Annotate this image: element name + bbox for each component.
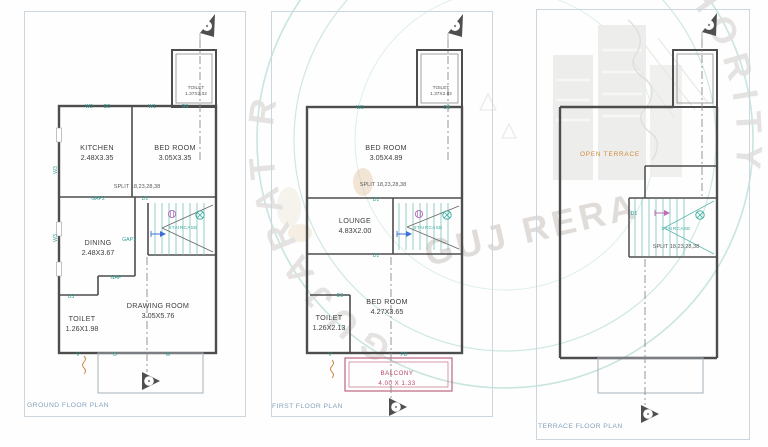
opening-d1: D1 bbox=[631, 211, 638, 217]
bedroom-label: BED ROOM bbox=[154, 143, 196, 152]
marker-dot bbox=[708, 24, 710, 26]
bedroom-dim: 3.05X3.35 bbox=[159, 153, 192, 162]
opening-gap1: GAP1 bbox=[122, 237, 136, 243]
down-arrow-head bbox=[664, 210, 670, 216]
toilet-shaft-wall bbox=[172, 50, 216, 107]
inner-walls bbox=[60, 107, 215, 295]
opening-d1-lower: D1 bbox=[373, 253, 380, 259]
stair-symbol-teal-cross bbox=[197, 212, 203, 218]
opening-w3: W3 bbox=[356, 105, 364, 111]
opening-d2: D2 bbox=[104, 104, 111, 110]
split-note: SPLIT 18,23,28,38 bbox=[360, 182, 407, 188]
bedroom-small-label: BED ROOM bbox=[366, 297, 408, 306]
up-arrow bbox=[397, 231, 406, 237]
staircase-label: STAIRCASE bbox=[661, 226, 690, 231]
split-note: SPLIT 18,23,28,38 bbox=[653, 244, 700, 250]
ground-floor-plan: TOILET 1.37X2.02 KITCHEN 2.48X3.35 BED R… bbox=[27, 14, 216, 409]
stair-symbol-magenta bbox=[168, 210, 175, 217]
opening-gap: GAP bbox=[111, 275, 122, 281]
drawing-room-dim: 3.05X5.76 bbox=[142, 311, 175, 320]
first-floor-title: FIRST FLOOR PLAN bbox=[272, 403, 343, 410]
toilet-label: TOILET bbox=[69, 314, 96, 323]
terrace-floor-title: TERRACE FLOOR PLAN bbox=[538, 423, 623, 430]
marker-dot bbox=[206, 25, 208, 27]
stair-symbol-teal-cross bbox=[444, 212, 450, 218]
ground-floor-title: GROUND FLOOR PLAN bbox=[27, 402, 109, 409]
bedroom-small-dim: 4.27X3.65 bbox=[371, 307, 404, 316]
balcony-dim: 4.00 X 1.33 bbox=[378, 380, 415, 387]
toilet-label: TOILET bbox=[316, 313, 343, 322]
entry-marker-bottom bbox=[142, 372, 160, 390]
open-terrace-label: OPEN TERRACE bbox=[580, 151, 640, 158]
stair-symbol-magenta-marks bbox=[171, 211, 174, 217]
up-arrow bbox=[151, 231, 160, 237]
opening-w3-upper: W3 bbox=[53, 166, 59, 174]
entry-porch bbox=[98, 353, 203, 393]
toilet-dim: 1.26X1.98 bbox=[66, 324, 99, 333]
opening-w1: W1 bbox=[148, 104, 156, 110]
north-marker-top bbox=[448, 14, 463, 46]
opening-d3-toilet: D3 bbox=[68, 294, 75, 300]
logo-trees bbox=[480, 94, 516, 138]
marker-dot bbox=[395, 406, 397, 408]
entry-marker-bottom bbox=[641, 405, 659, 423]
opening-d3-top: D3 bbox=[182, 104, 189, 110]
balcony-label: BALCONY bbox=[380, 370, 413, 377]
stair-symbol-magenta bbox=[415, 210, 422, 217]
kitchen-dim: 2.48X3.35 bbox=[81, 153, 114, 162]
opening-gap2: GAP2 bbox=[91, 196, 105, 202]
kitchen-label: KITCHEN bbox=[80, 143, 114, 152]
opening-d3-toilet: D3 bbox=[337, 293, 344, 299]
bedroom-large-dim: 3.05X4.89 bbox=[370, 153, 403, 162]
opening-w: W bbox=[166, 352, 171, 358]
lounge-label: LOUNGE bbox=[339, 216, 371, 225]
drawing-room-label: DRAWING ROOM bbox=[127, 301, 189, 310]
toilet-shaft-wall bbox=[417, 50, 462, 107]
shaft-toilet-name: TOILET bbox=[433, 85, 450, 91]
north-marker-top bbox=[200, 14, 215, 46]
up-arrow-head bbox=[160, 231, 166, 237]
floor-plans-canvas: GUJARAT R AUTHORITY GUJ RERA bbox=[0, 0, 768, 447]
up-arrow-head bbox=[406, 231, 412, 237]
plumbing-annotation bbox=[331, 360, 334, 378]
shaft-toilet-name: TOILET bbox=[188, 85, 205, 91]
dining-dim: 2.48X3.67 bbox=[82, 248, 115, 257]
shaft-toilet-dim: 1.37X2.02 bbox=[430, 91, 452, 97]
opening-fd: FD bbox=[401, 352, 408, 358]
marker-dot bbox=[454, 25, 456, 27]
lounge-dim: 4.83X2.00 bbox=[339, 226, 372, 235]
opening-d1: D1 bbox=[142, 196, 149, 202]
entry-marker-bottom bbox=[389, 398, 407, 416]
toilet-dim: 1.26X2.13 bbox=[313, 323, 346, 332]
shaft-inner bbox=[677, 54, 713, 103]
opening-d3-top: D3 bbox=[444, 105, 451, 111]
opening-w2: W2 bbox=[85, 104, 93, 110]
opening-d: D bbox=[113, 352, 117, 358]
plumbing-annotation bbox=[83, 356, 86, 374]
bedroom-large-label: BED ROOM bbox=[365, 143, 407, 152]
opening-w3-lower: W3 bbox=[53, 234, 59, 242]
split-note: SPLIT 18,23,28,38 bbox=[114, 184, 161, 190]
marker-dot bbox=[148, 380, 150, 382]
opening-v: V bbox=[328, 352, 332, 358]
shaft-toilet-dim: 1.37X2.02 bbox=[185, 91, 207, 97]
staircase-label: STAIRCASE bbox=[168, 225, 197, 230]
opening-d1-upper: D1 bbox=[373, 197, 380, 203]
staircase-label: STAIRCASE bbox=[413, 225, 442, 230]
opening-v: V bbox=[76, 352, 80, 358]
dining-label: DINING bbox=[85, 238, 112, 247]
marker-dot bbox=[647, 413, 649, 415]
floor-plan-sheet: GUJARAT R AUTHORITY GUJ RERA bbox=[0, 0, 768, 447]
